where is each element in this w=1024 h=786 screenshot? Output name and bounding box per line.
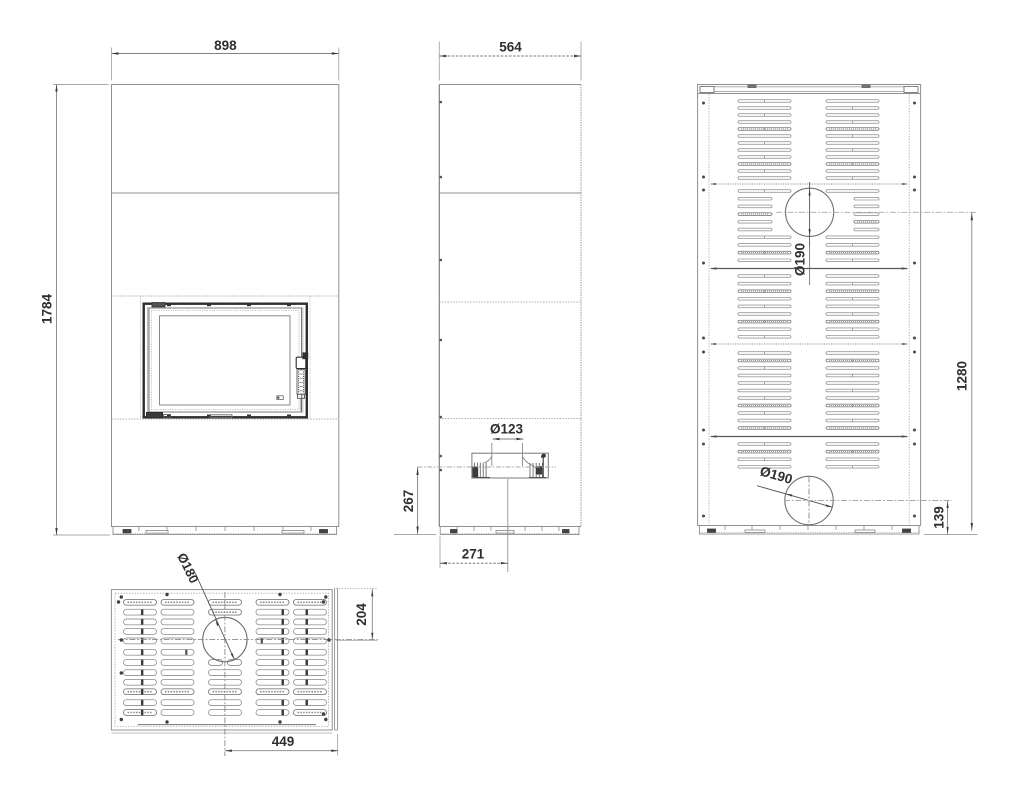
svg-text:204: 204 — [354, 603, 369, 626]
svg-text:271: 271 — [462, 547, 485, 562]
svg-text:898: 898 — [214, 38, 237, 53]
svg-text:564: 564 — [499, 40, 522, 55]
svg-text:139: 139 — [932, 506, 947, 529]
svg-text:1784: 1784 — [40, 293, 55, 324]
svg-text:449: 449 — [272, 734, 295, 749]
svg-text:1280: 1280 — [955, 361, 970, 391]
svg-text:Ø190: Ø190 — [793, 243, 808, 276]
svg-text:Ø123: Ø123 — [490, 422, 524, 437]
svg-text:267: 267 — [401, 490, 416, 513]
